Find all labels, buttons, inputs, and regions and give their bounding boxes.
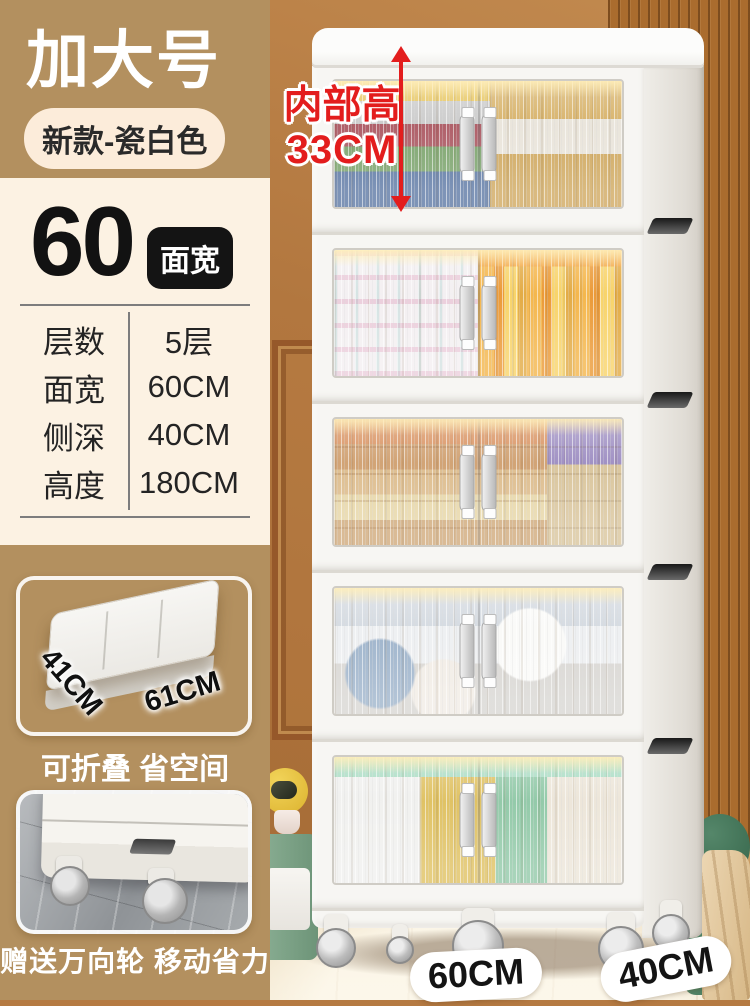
tier-handles: [460, 789, 497, 851]
bedside-lamp: [274, 810, 300, 834]
cabinet-wheel: [386, 924, 414, 964]
side-handle-slot: [646, 392, 693, 408]
measure-arrow: [390, 46, 412, 212]
tier-window: [332, 248, 624, 378]
variant-pill: 新款-瓷白色: [24, 108, 225, 169]
tier-window: [332, 755, 624, 885]
tier-handles: [460, 113, 497, 175]
wheel-caption: 赠送万向轮 移动省力: [0, 940, 270, 980]
width-unit-badge: 面宽: [147, 227, 233, 289]
cabinet-side-panel: [642, 66, 704, 938]
spec-panel: 60 面宽 层数 5层 面宽 60CM 侧深 40CM 高度 180CM: [0, 178, 270, 545]
spec-value: 5层: [128, 317, 250, 362]
spec-row: 面宽 60CM: [20, 363, 250, 411]
cabinet-tier-2: [312, 235, 644, 404]
spec-label: 侧深: [20, 413, 128, 458]
base-seam: [42, 819, 252, 827]
base-notch: [129, 839, 176, 855]
spec-value: 180CM: [128, 465, 250, 501]
side-handle-slot: [646, 218, 693, 234]
tier-handles: [460, 451, 497, 513]
spec-value: 60CM: [128, 369, 250, 405]
tier-handles: [460, 282, 497, 344]
side-handle-slot: [646, 738, 693, 754]
cabinet-tier-3: [312, 404, 644, 573]
size-badge-title: 加大号: [26, 10, 221, 101]
spec-label: 面宽: [20, 365, 128, 410]
fold-caption: 可折叠 省空间: [0, 744, 270, 788]
width-number: 60: [30, 192, 133, 290]
cabinet-wheel: [316, 914, 356, 968]
wheel-feature-card: [16, 790, 252, 934]
cabinet-front: [312, 66, 644, 928]
info-sidebar: 加大号 新款-瓷白色 60 面宽 层数 5层 面宽 60CM 侧深 40CM 高…: [0, 0, 270, 1000]
cabinet-tier-5: [312, 742, 644, 911]
tier-window: [332, 586, 624, 716]
inner-height-title: 内部高: [282, 84, 402, 128]
door-handle: [482, 789, 497, 851]
door-handle: [482, 282, 497, 344]
inner-height-annotation: 内部高 33CM: [282, 84, 402, 172]
spec-table: 层数 5层 面宽 60CM 侧深 40CM 高度 180CM: [20, 304, 250, 518]
door-handle: [460, 620, 475, 682]
spec-label: 层数: [20, 317, 128, 362]
width-headline: 60 面宽: [30, 192, 233, 290]
spec-row: 高度 180CM: [20, 459, 250, 507]
inner-height-value: 33CM: [282, 128, 402, 173]
door-handle: [460, 789, 475, 851]
nightstand-drawer: [266, 868, 310, 930]
door-handle: [460, 113, 475, 175]
cabinet-tier-4: [312, 573, 644, 742]
door-handle: [482, 620, 497, 682]
spec-value: 40CM: [128, 417, 250, 453]
door-handle: [460, 451, 475, 513]
tier-window: [332, 417, 624, 547]
table-divider: [128, 312, 130, 510]
door-handle: [460, 282, 475, 344]
spec-row: 层数 5层: [20, 315, 250, 363]
spec-label: 高度: [20, 461, 128, 506]
side-handle-slot: [646, 564, 693, 580]
tier-handles: [460, 620, 497, 682]
arrow-down-icon: [391, 196, 411, 212]
spec-row: 侧深 40CM: [20, 411, 250, 459]
door-handle: [482, 451, 497, 513]
fold-feature-card: 41CM 61CM: [16, 576, 252, 736]
door-handle: [482, 113, 497, 175]
bottom-width-pill: 60CM: [409, 947, 543, 1004]
arrow-line: [399, 58, 403, 200]
cabinet-top: [312, 28, 704, 68]
